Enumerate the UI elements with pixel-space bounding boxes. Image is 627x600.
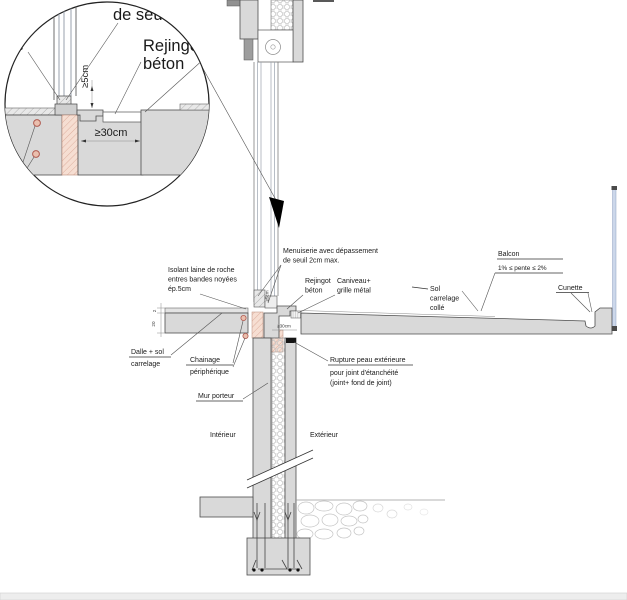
- interior-leaf-top: [240, 0, 258, 39]
- label-rupture-1: Rupture peau extérieure: [330, 357, 406, 364]
- technical-drawing-page: 2 20 ≥5cm ≥30cm: [0, 0, 627, 600]
- label-cunette: Cunette: [558, 285, 583, 292]
- detail-circle: ≥5cm ≥30cm de seuil Rejingot béton s: [0, 0, 222, 206]
- section-drawing: 2 20 ≥5cm ≥30cm: [0, 0, 627, 600]
- label-mur-porteur: Mur porteur: [198, 393, 235, 400]
- plancher-bas: [200, 497, 253, 517]
- detail-edge-fragment: s: [18, 42, 23, 53]
- label-dalle-2: carrelage: [131, 361, 160, 368]
- label-rejingot-2: béton: [305, 288, 323, 295]
- label-rupture-3: (joint+ fond de joint): [330, 380, 392, 387]
- dim-carrelage: 2: [152, 309, 157, 312]
- label-interieur: Intérieur: [210, 432, 236, 439]
- label-chainage-2: périphérique: [190, 369, 229, 376]
- page-bottom-band: [0, 593, 627, 600]
- detail-label-rejingot: Rejingot: [143, 37, 204, 55]
- label-sol-2: carrelage: [430, 296, 459, 303]
- frame-sill-block: [254, 290, 265, 307]
- balcony-slab: [301, 308, 612, 334]
- label-menuiserie-2: de seuil 2cm max.: [283, 258, 339, 265]
- label-isolant-2: entres bandes noyées: [168, 277, 237, 284]
- glass-balustrade: [612, 186, 618, 331]
- dim-dalle: 20: [151, 321, 156, 327]
- semelle: [247, 538, 310, 575]
- label-isolant-1: Isolant laine de roche: [168, 267, 235, 274]
- chainage-marker-1: [241, 315, 246, 320]
- stones: [297, 501, 428, 539]
- label-caniveau-1: Caniveau+: [337, 278, 371, 285]
- label-rejingot-1: Rejingot: [305, 278, 331, 285]
- detail-label-beton: béton: [143, 55, 184, 73]
- glass-cap-bottom: [612, 326, 618, 331]
- insulation-wall: [272, 338, 285, 540]
- label-exterieur: Extérieur: [310, 432, 339, 439]
- mur-porteur-leaf: [253, 338, 271, 540]
- chainage-marker-2: [243, 333, 248, 338]
- frame-fixing: [244, 39, 253, 60]
- frame-screw-symbol: [266, 40, 281, 55]
- insulation-top: [271, 0, 293, 30]
- label-caniveau-2: grille métal: [337, 288, 371, 295]
- exterior-leaf-top: [293, 0, 303, 62]
- annotations: Menuiserie avec dépassement de seuil 2cm…: [129, 248, 592, 439]
- label-sol-3: collé: [430, 305, 445, 312]
- brick-element-1: [252, 312, 263, 338]
- label-isolant-3: ép.5cm: [168, 286, 191, 293]
- label-chainage-1: Chainage: [190, 357, 220, 364]
- detail-label-de-seuil: de seuil: [113, 6, 170, 24]
- carrelage-layer: [165, 308, 248, 313]
- dim-rejingot-main: ≥30cm: [277, 324, 291, 329]
- glass-panel: [613, 189, 617, 328]
- exterior-ground: [296, 500, 445, 539]
- label-dalle-1: Dalle + sol: [131, 349, 164, 356]
- detail-dim-30cm: ≥30cm: [95, 127, 128, 139]
- label-sol-1: Sol: [430, 286, 441, 293]
- label-pente: 1% ≤ pente ≤ 2%: [498, 265, 547, 272]
- upper-wall: [227, 0, 334, 62]
- dalle-interieure: [165, 313, 248, 333]
- label-rupture-2: pour joint d'étanchéité: [330, 370, 398, 377]
- label-balcon: Balcon: [498, 251, 520, 258]
- glass-cap-top: [612, 186, 618, 190]
- label-menuiserie-1: Menuiserie avec dépassement: [283, 248, 378, 255]
